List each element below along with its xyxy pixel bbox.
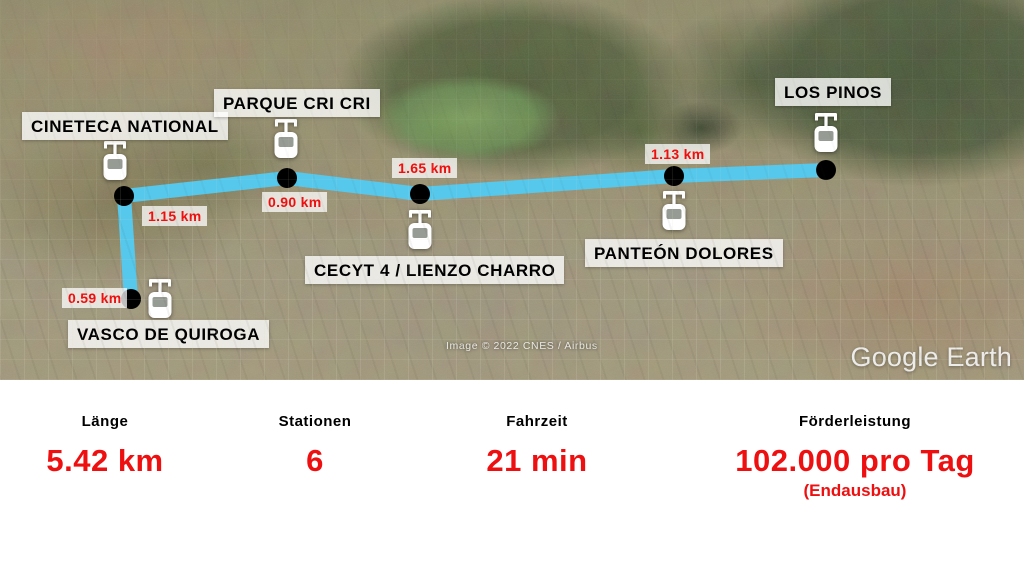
stat-note: (Endausbau): [735, 481, 975, 501]
stat-label: Fahrzeit: [486, 413, 587, 430]
distance-label-4: 1.13 km: [645, 144, 710, 164]
distance-label-1: 1.15 km: [142, 206, 207, 226]
stat-label: Stationen: [279, 413, 352, 430]
station-dot-panteon: [664, 166, 684, 186]
station-label-lospinos: LOS PINOS: [775, 78, 891, 106]
station-dot-lospinos: [816, 160, 836, 180]
cable-car-icon: [661, 191, 687, 235]
cable-car-icon: [813, 113, 839, 157]
station-dot-cecyt: [410, 184, 430, 204]
google-earth-watermark: Google Earth: [851, 342, 1013, 373]
stat-value: 5.42 km: [46, 443, 163, 479]
station-dot-cineteca: [114, 186, 134, 206]
imagery-attribution: Image © 2022 CNES / Airbus: [446, 340, 598, 352]
distance-label-0: 0.59 km: [62, 288, 127, 308]
distance-label-3: 1.65 km: [392, 158, 457, 178]
stat-stationen: Stationen 6: [279, 413, 352, 479]
stat-value: 6: [279, 443, 352, 479]
station-label-cineteca: CINETECA NATIONAL: [22, 112, 228, 140]
stat-label: Förderleistung: [735, 413, 975, 430]
stat-fahrzeit: Fahrzeit 21 min: [486, 413, 587, 479]
station-label-vasco: VASCO DE QUIROGA: [68, 320, 269, 348]
stat-laenge: Länge 5.42 km: [46, 413, 163, 479]
cable-car-icon: [407, 210, 433, 254]
stat-label: Länge: [46, 413, 163, 430]
cable-car-icon: [147, 279, 173, 323]
stat-foerderleistung: Förderleistung 102.000 pro Tag (Endausba…: [735, 413, 975, 501]
station-label-cecyt: CECYT 4 / LIENZO CHARRO: [305, 256, 564, 284]
slide: CINETECA NATIONAL PARQUE CRI CRI VASCO D…: [0, 0, 1024, 561]
stat-value: 102.000 pro Tag: [735, 443, 975, 479]
station-label-panteon: PANTEÓN DOLORES: [585, 239, 783, 267]
distance-label-2: 0.90 km: [262, 192, 327, 212]
satellite-map: CINETECA NATIONAL PARQUE CRI CRI VASCO D…: [0, 0, 1024, 380]
cable-car-icon: [102, 141, 128, 185]
cable-car-icon: [273, 119, 299, 163]
stat-value: 21 min: [486, 443, 587, 479]
station-dot-parque: [277, 168, 297, 188]
station-label-parque: PARQUE CRI CRI: [214, 89, 380, 117]
